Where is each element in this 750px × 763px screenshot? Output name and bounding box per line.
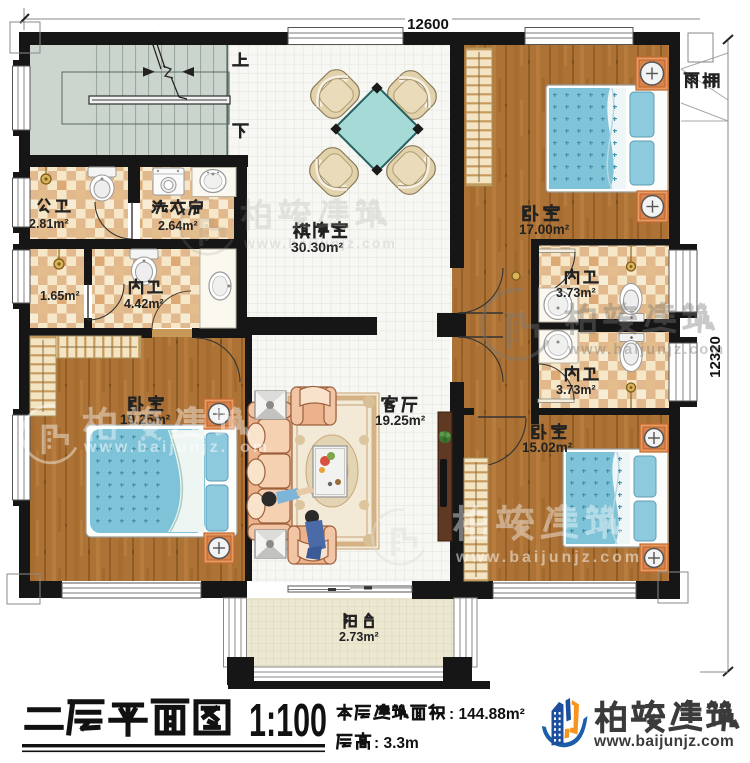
svg-text:: 3.3m: : 3.3m	[374, 735, 419, 752]
svg-text:2.64m²: 2.64m²	[158, 219, 198, 233]
svg-text:www.baijunjz.com: www.baijunjz.com	[567, 342, 725, 358]
svg-text:www.baijunjz.com: www.baijunjz.com	[83, 439, 270, 456]
svg-text:15.02m²: 15.02m²	[522, 440, 573, 455]
svg-text:17.00m²: 17.00m²	[519, 222, 570, 237]
svg-text:12600: 12600	[407, 16, 449, 33]
svg-text:www.baijunjz.com: www.baijunjz.com	[243, 235, 397, 251]
svg-text:1.65m²: 1.65m²	[40, 289, 80, 303]
svg-text:3.73m²: 3.73m²	[556, 383, 596, 397]
svg-text:2.73m²: 2.73m²	[339, 630, 379, 644]
svg-text:1:100: 1:100	[249, 694, 327, 746]
svg-text:www.baijunjz.com: www.baijunjz.com	[593, 733, 734, 750]
svg-text:19.25m²: 19.25m²	[375, 413, 426, 428]
svg-text:: 144.88m²: : 144.88m²	[449, 706, 525, 723]
svg-text:2.81m²: 2.81m²	[29, 217, 69, 231]
svg-text:www.baijunjz.com: www.baijunjz.com	[455, 549, 642, 566]
svg-text:4.42m²: 4.42m²	[124, 297, 164, 311]
svg-text:3.73m²: 3.73m²	[556, 286, 596, 300]
